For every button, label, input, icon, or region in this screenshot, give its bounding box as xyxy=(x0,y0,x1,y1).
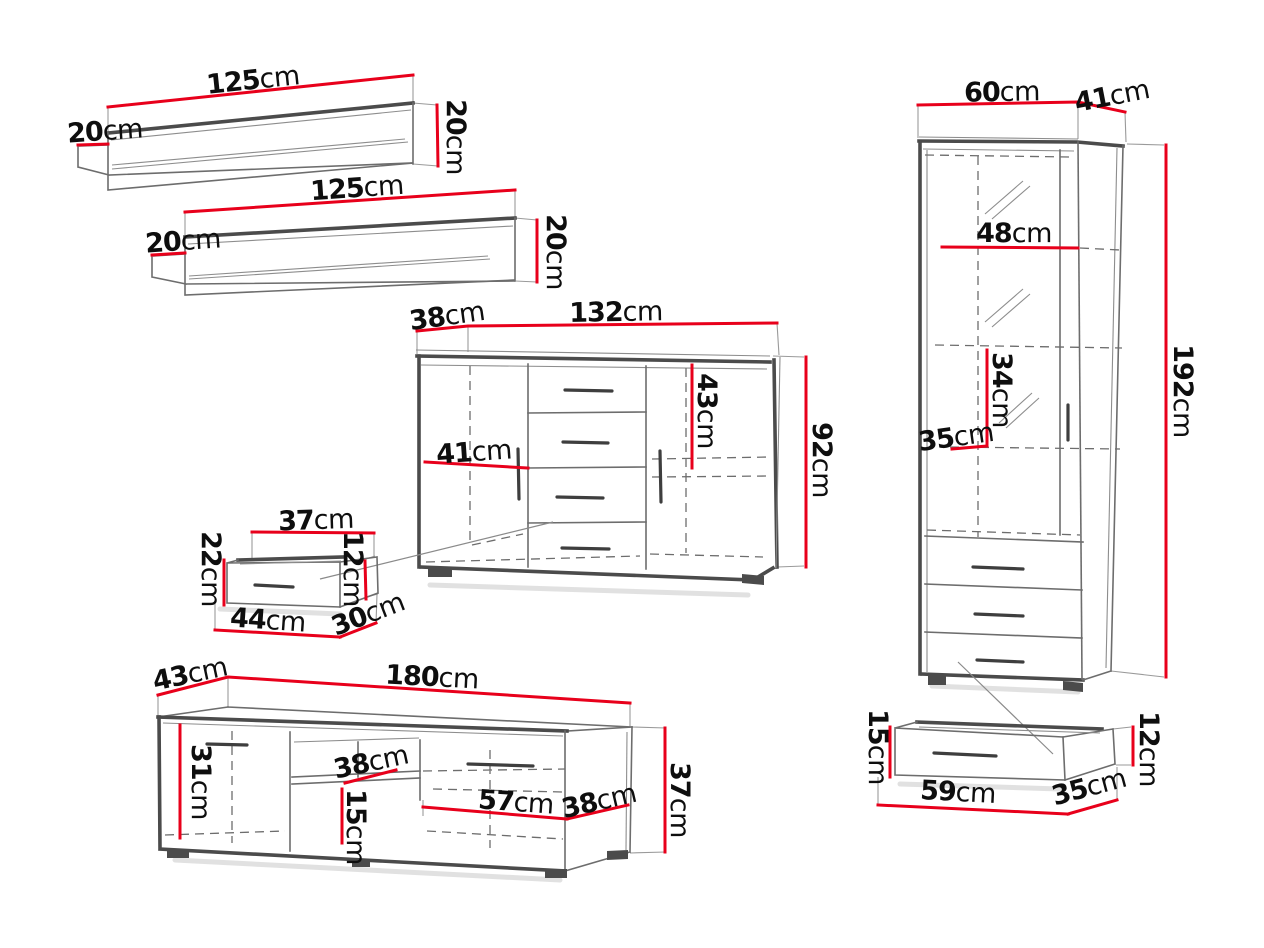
cabinet-drawer-handle xyxy=(934,753,996,756)
dim-label-cabinet-drawer-depth: 35cm xyxy=(1049,763,1130,813)
dim-label-cabinet-height: 192cm xyxy=(1167,344,1198,438)
dim-label-tv-width: 180cm xyxy=(384,660,479,696)
dim-label-shelf-bottom-depth: 20cm xyxy=(144,223,222,259)
furniture-dimensions-diagram: 125cm 20cm 20cm 125cm 20cm 20cm xyxy=(0,0,1264,948)
wall-shelf-bottom: 125cm 20cm 20cm xyxy=(144,170,571,295)
dim-label-cabinet-inner-depth: 35cm xyxy=(916,417,995,458)
tv-stand-outline xyxy=(158,677,666,878)
diagram-canvas: 125cm 20cm 20cm 125cm 20cm 20cm xyxy=(0,0,1264,948)
cabinet-drawer: 15cm 12cm 59cm 35cm xyxy=(862,709,1164,814)
dim-label-cabinet-width: 60cm xyxy=(964,76,1040,108)
dim-label-tv-depth: 43cm xyxy=(150,651,231,697)
dim-label-cabinet-drawer-width: 59cm xyxy=(919,775,996,810)
dim-line-shelf-top-height xyxy=(437,105,438,166)
dim-label-cabinet-drawer-height: 15cm xyxy=(862,709,893,785)
dim-label-tv-inner-width: 57cm xyxy=(477,784,555,820)
dim-label-drawer-insert-front-height: 12cm xyxy=(337,531,368,607)
wall-shelf-top: 125cm 20cm 20cm xyxy=(66,60,471,190)
dim-label-shelf-top-width: 125cm xyxy=(205,60,301,101)
display-cabinet: 60cm 41cm 48cm 34cm 35cm 192cm xyxy=(916,74,1198,754)
dim-label-sideboard-height: 92cm xyxy=(806,422,837,498)
drawer-insert: 37cm 22cm 12cm 44cm 30cm xyxy=(195,504,553,643)
dim-label-shelf-bottom-height: 20cm xyxy=(540,214,571,290)
dim-label-cabinet-inner-width: 48cm xyxy=(976,218,1052,249)
dim-label-cabinet-depth: 41cm xyxy=(1072,74,1152,119)
dim-label-sideboard-width: 132cm xyxy=(569,296,663,329)
dim-label-sideboard-depth: 38cm xyxy=(407,296,486,337)
dim-label-sideboard-door-inner-height: 43cm xyxy=(691,373,722,449)
display-cabinet-outline xyxy=(918,102,1164,692)
dim-label-cabinet-drawer-front-height: 12cm xyxy=(1133,711,1164,787)
dim-label-shelf-top-height: 20cm xyxy=(440,99,471,175)
sideboard: 38cm 132cm 43cm 92cm 41cm xyxy=(407,296,837,595)
dim-label-tv-height: 37cm xyxy=(664,762,695,838)
dim-label-tv-shelf-height: 15cm xyxy=(340,789,371,865)
dim-label-drawer-insert-bottom-width: 44cm xyxy=(229,602,307,638)
dim-label-tv-inner-depth: 38cm xyxy=(559,778,640,825)
dim-label-shelf-bottom-width: 125cm xyxy=(309,170,404,207)
dim-label-drawer-insert-height: 22cm xyxy=(195,531,226,607)
drawer-insert-handle xyxy=(255,585,293,587)
dim-label-tv-inner-height: 31cm xyxy=(185,744,216,820)
dim-label-shelf-top-depth: 20cm xyxy=(66,113,144,149)
dim-label-sideboard-inner-width: 41cm xyxy=(435,434,513,470)
tv-stand: 43cm 180cm 31cm 38cm 15cm 57cm 38cm 37cm xyxy=(150,651,695,880)
